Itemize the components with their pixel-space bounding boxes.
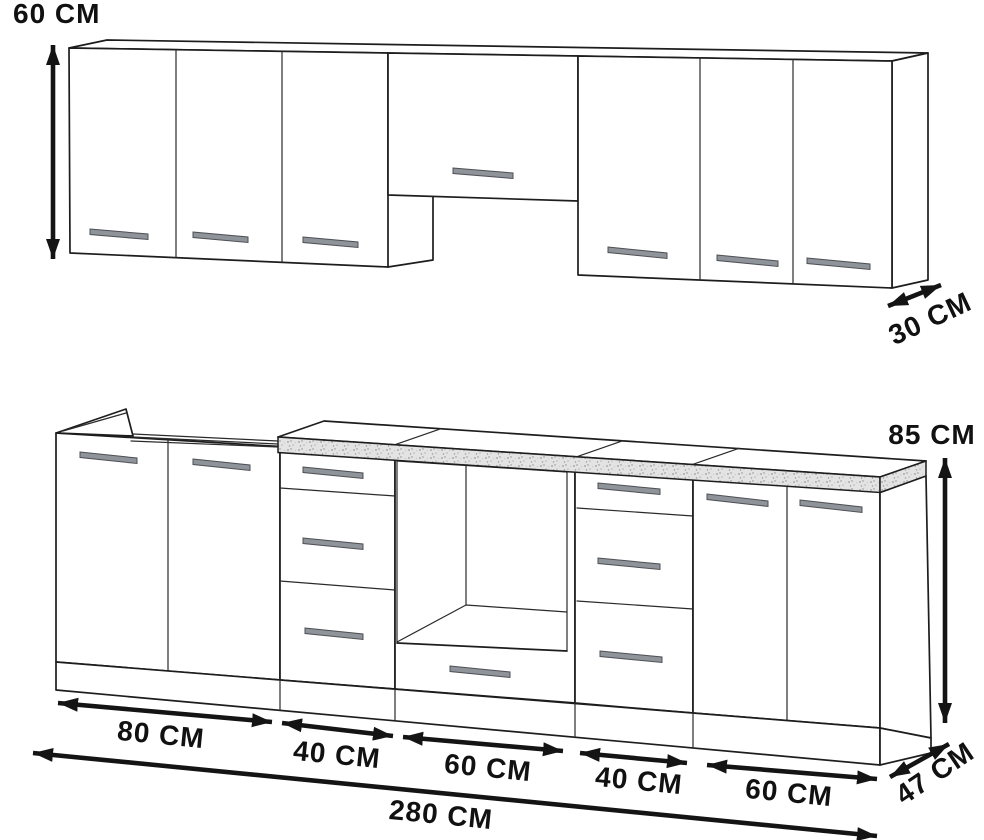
diagram-svg: 60 CM 30 CM 85 CM 80 CM 40 CM 60 CM 40 C… xyxy=(0,0,984,840)
oven-cabinet-front xyxy=(395,454,575,704)
base-cabinet-run xyxy=(56,409,931,765)
width-label-80: 80 CM xyxy=(116,715,206,754)
width-label-40b: 40 CM xyxy=(594,761,684,800)
width-arrow-60a xyxy=(403,737,563,751)
total-width-label: 280 CM xyxy=(388,794,495,835)
base-height-label: 85 CM xyxy=(888,419,975,450)
drawer-unit-1-front xyxy=(280,447,395,690)
width-label-40a: 40 CM xyxy=(292,735,382,774)
width-label-60a: 60 CM xyxy=(443,748,533,787)
width-arrow-40a xyxy=(282,723,393,736)
wall-depth-label: 30 CM xyxy=(884,286,976,351)
width-label-60b: 60 CM xyxy=(744,773,834,812)
drawer-unit-2-front xyxy=(575,464,693,713)
wall-cabinet-run xyxy=(69,40,928,288)
kitchen-dimensions-diagram: 60 CM 30 CM 85 CM 80 CM 40 CM 60 CM 40 C… xyxy=(0,0,984,840)
wall-height-label: 60 CM xyxy=(13,0,100,29)
wall-left-block-side-return xyxy=(388,197,433,267)
wall-right-side-face xyxy=(892,53,928,288)
base-right-side-face xyxy=(880,476,931,738)
wall-hood-cabinet-front xyxy=(388,53,578,201)
